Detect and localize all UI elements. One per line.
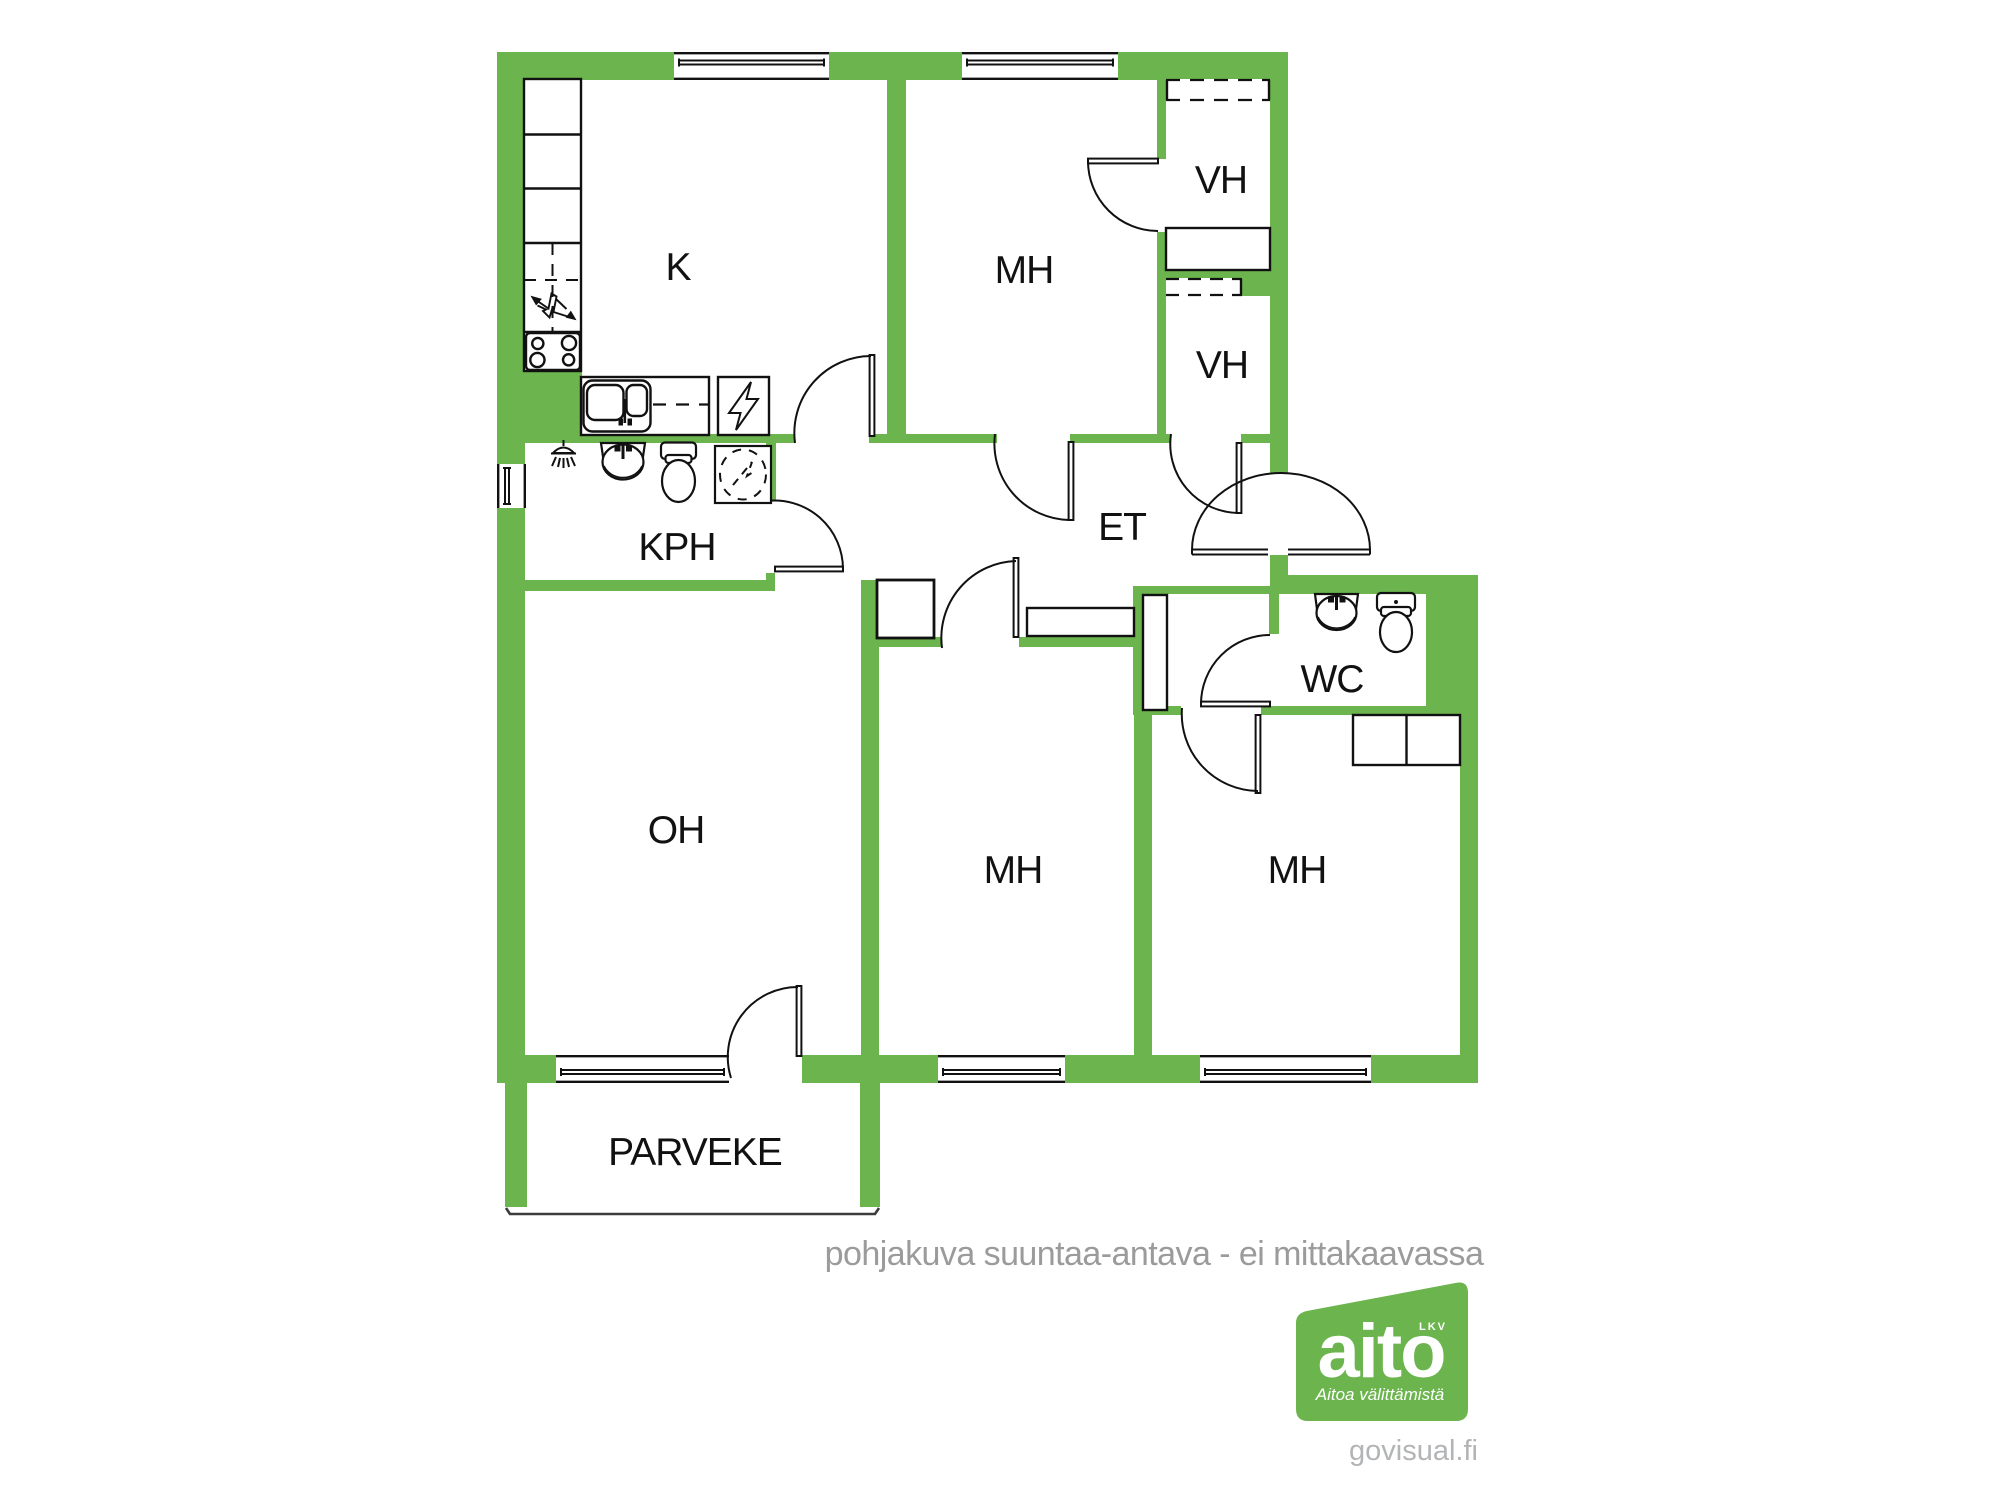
svg-text:OH: OH	[648, 809, 705, 852]
svg-text:LKV: LKV	[1419, 1321, 1447, 1333]
svg-text:VH: VH	[1196, 344, 1248, 387]
svg-text:govisual.fi: govisual.fi	[1349, 1435, 1478, 1467]
svg-text:MH: MH	[984, 849, 1043, 892]
svg-text:VH: VH	[1195, 159, 1247, 202]
svg-text:MH: MH	[1268, 849, 1327, 892]
svg-text:KPH: KPH	[638, 526, 715, 569]
svg-text:ET: ET	[1098, 506, 1146, 549]
svg-text:WC: WC	[1301, 658, 1364, 701]
svg-text:K: K	[665, 246, 691, 289]
svg-text:PARVEKE: PARVEKE	[608, 1131, 782, 1174]
svg-text:MH: MH	[995, 249, 1054, 292]
svg-text:pohjakuva suuntaa-antava - ei: pohjakuva suuntaa-antava - ei mittakaava…	[825, 1235, 1484, 1273]
svg-text:Aitoa välittämistä: Aitoa välittämistä	[1315, 1385, 1445, 1404]
